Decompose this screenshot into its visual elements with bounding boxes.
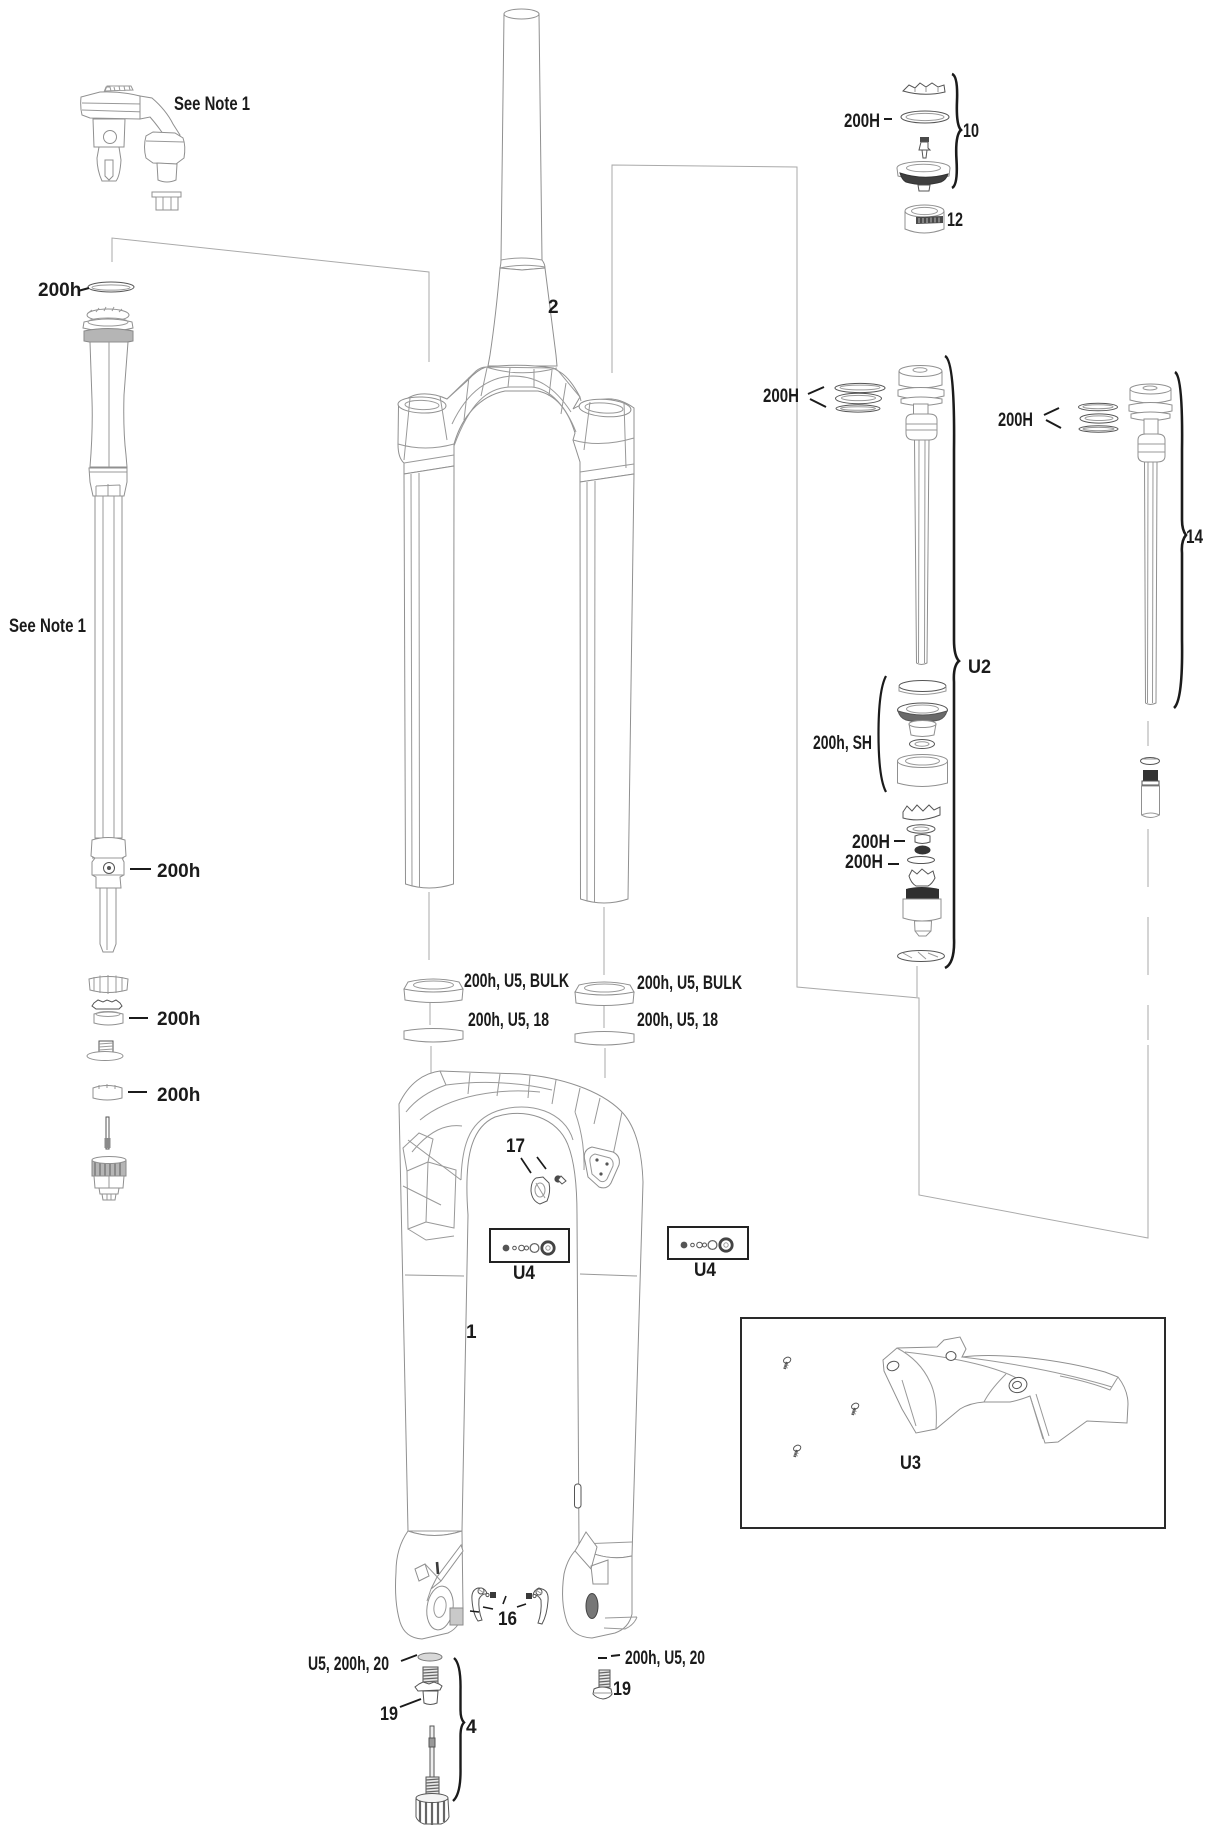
svg-text:U3: U3	[900, 1453, 921, 1474]
svg-text:12: 12	[947, 210, 963, 231]
svg-text:2: 2	[548, 297, 559, 318]
svg-text:200H: 200H	[998, 410, 1033, 431]
svg-text:200H: 200H	[763, 386, 799, 407]
svg-text:200h, U5, BULK: 200h, U5, BULK	[637, 973, 742, 994]
svg-text:See Note 1: See Note 1	[174, 94, 250, 115]
svg-text:16: 16	[498, 1609, 517, 1630]
svg-text:200h: 200h	[38, 280, 81, 301]
svg-text:200H: 200H	[852, 832, 890, 853]
svg-text:200h, U5, 20: 200h, U5, 20	[625, 1648, 705, 1669]
svg-text:200h, U5, 18: 200h, U5, 18	[637, 1010, 718, 1031]
svg-text:1: 1	[466, 1322, 477, 1343]
svg-text:U4: U4	[694, 1260, 716, 1281]
svg-text:200h: 200h	[157, 1085, 200, 1106]
svg-text:U5, 200h, 20: U5, 200h, 20	[308, 1654, 389, 1675]
svg-text:4: 4	[466, 1717, 477, 1738]
svg-text:200H: 200H	[844, 111, 880, 132]
svg-text:19: 19	[380, 1704, 398, 1725]
svg-text:200H: 200H	[845, 852, 883, 873]
svg-text:U4: U4	[513, 1263, 535, 1284]
svg-text:200h, U5, 18: 200h, U5, 18	[468, 1010, 549, 1031]
svg-text:19: 19	[613, 1679, 631, 1700]
svg-text:U2: U2	[968, 657, 991, 678]
svg-text:17: 17	[506, 1136, 525, 1157]
svg-text:200h, U5, BULK: 200h, U5, BULK	[464, 971, 569, 992]
svg-text:See Note 1: See Note 1	[9, 616, 86, 637]
svg-text:200h, SH: 200h, SH	[813, 733, 872, 754]
svg-text:14: 14	[1186, 527, 1203, 548]
svg-text:200h: 200h	[157, 1009, 200, 1030]
svg-text:200h: 200h	[157, 861, 200, 882]
svg-text:10: 10	[963, 121, 979, 142]
